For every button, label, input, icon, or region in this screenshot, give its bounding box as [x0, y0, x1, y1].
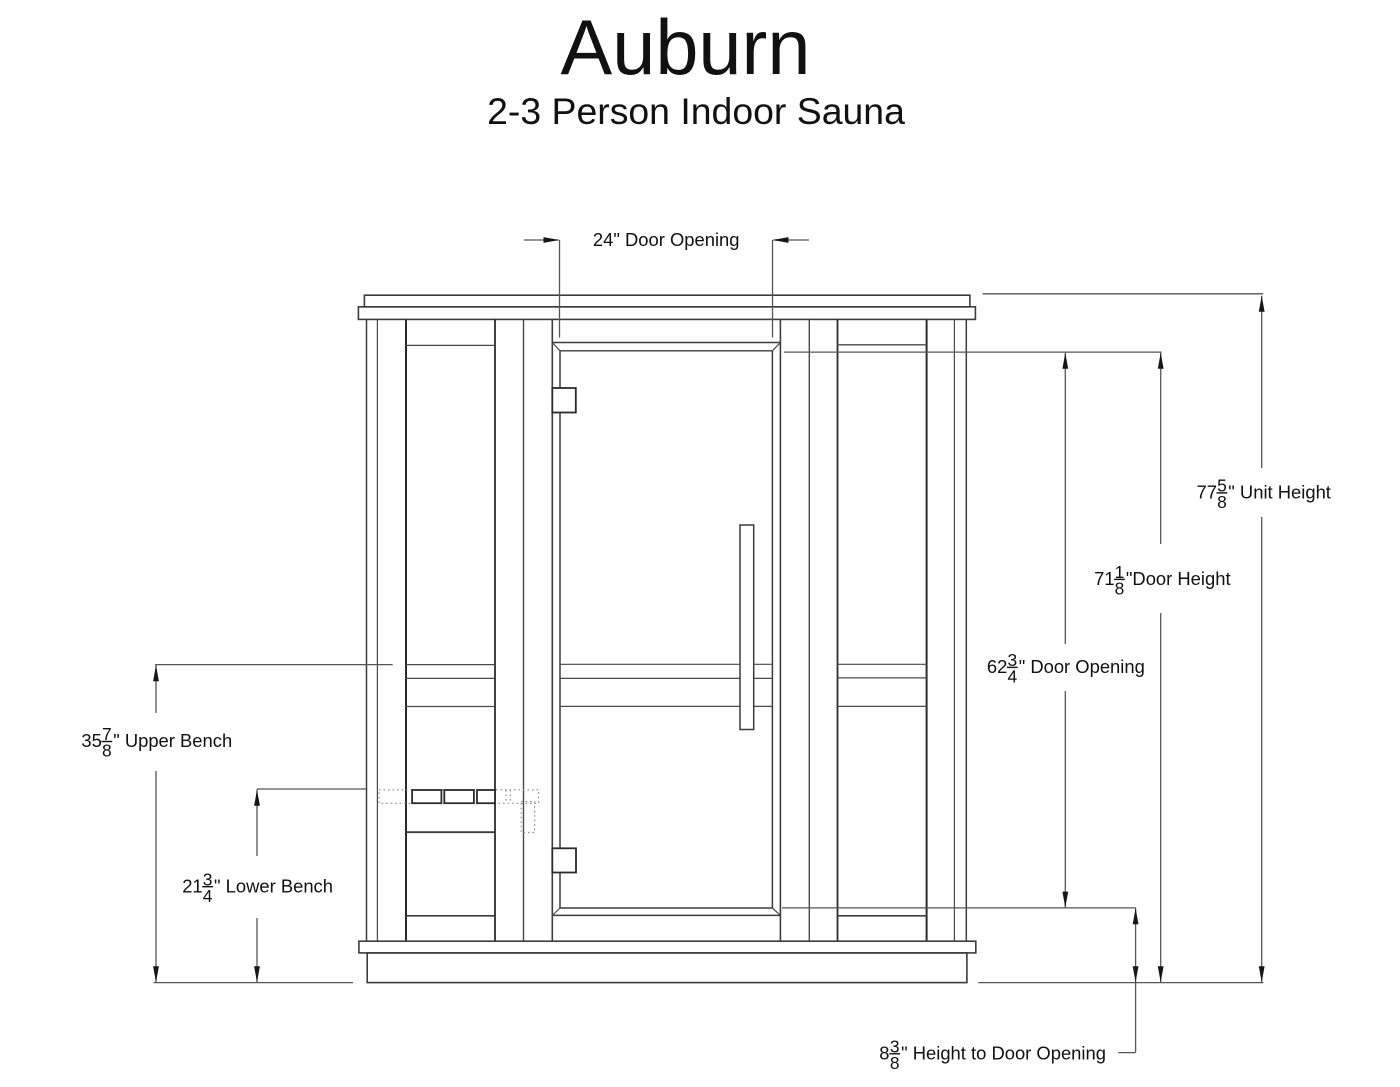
svg-text:8: 8 [1217, 492, 1227, 512]
svg-text:24" Door Opening: 24" Door Opening [593, 229, 740, 250]
svg-text:8: 8 [102, 741, 112, 761]
svg-text:4: 4 [1007, 667, 1017, 687]
svg-text:" Upper Bench: " Upper Bench [113, 730, 232, 751]
svg-text:"Door Height: "Door Height [1126, 568, 1231, 589]
svg-text:8: 8 [1115, 579, 1125, 599]
svg-text:8: 8 [890, 1053, 900, 1073]
svg-text:" Unit Height: " Unit Height [1228, 482, 1331, 503]
svg-text:21: 21 [182, 875, 202, 896]
svg-text:" Door Opening: " Door Opening [1019, 656, 1145, 677]
svg-text:77: 77 [1197, 482, 1217, 503]
svg-text:Auburn: Auburn [561, 5, 811, 91]
svg-text:" Lower Bench: " Lower Bench [214, 875, 333, 896]
svg-text:2-3 Person Indoor Sauna: 2-3 Person Indoor Sauna [487, 90, 905, 132]
svg-text:4: 4 [203, 886, 213, 906]
svg-text:62: 62 [987, 656, 1007, 677]
svg-text:71: 71 [1094, 568, 1114, 589]
svg-text:" Height to Door Opening: " Height to Door Opening [901, 1042, 1106, 1063]
svg-text:8: 8 [879, 1042, 889, 1063]
svg-text:35: 35 [81, 730, 101, 751]
